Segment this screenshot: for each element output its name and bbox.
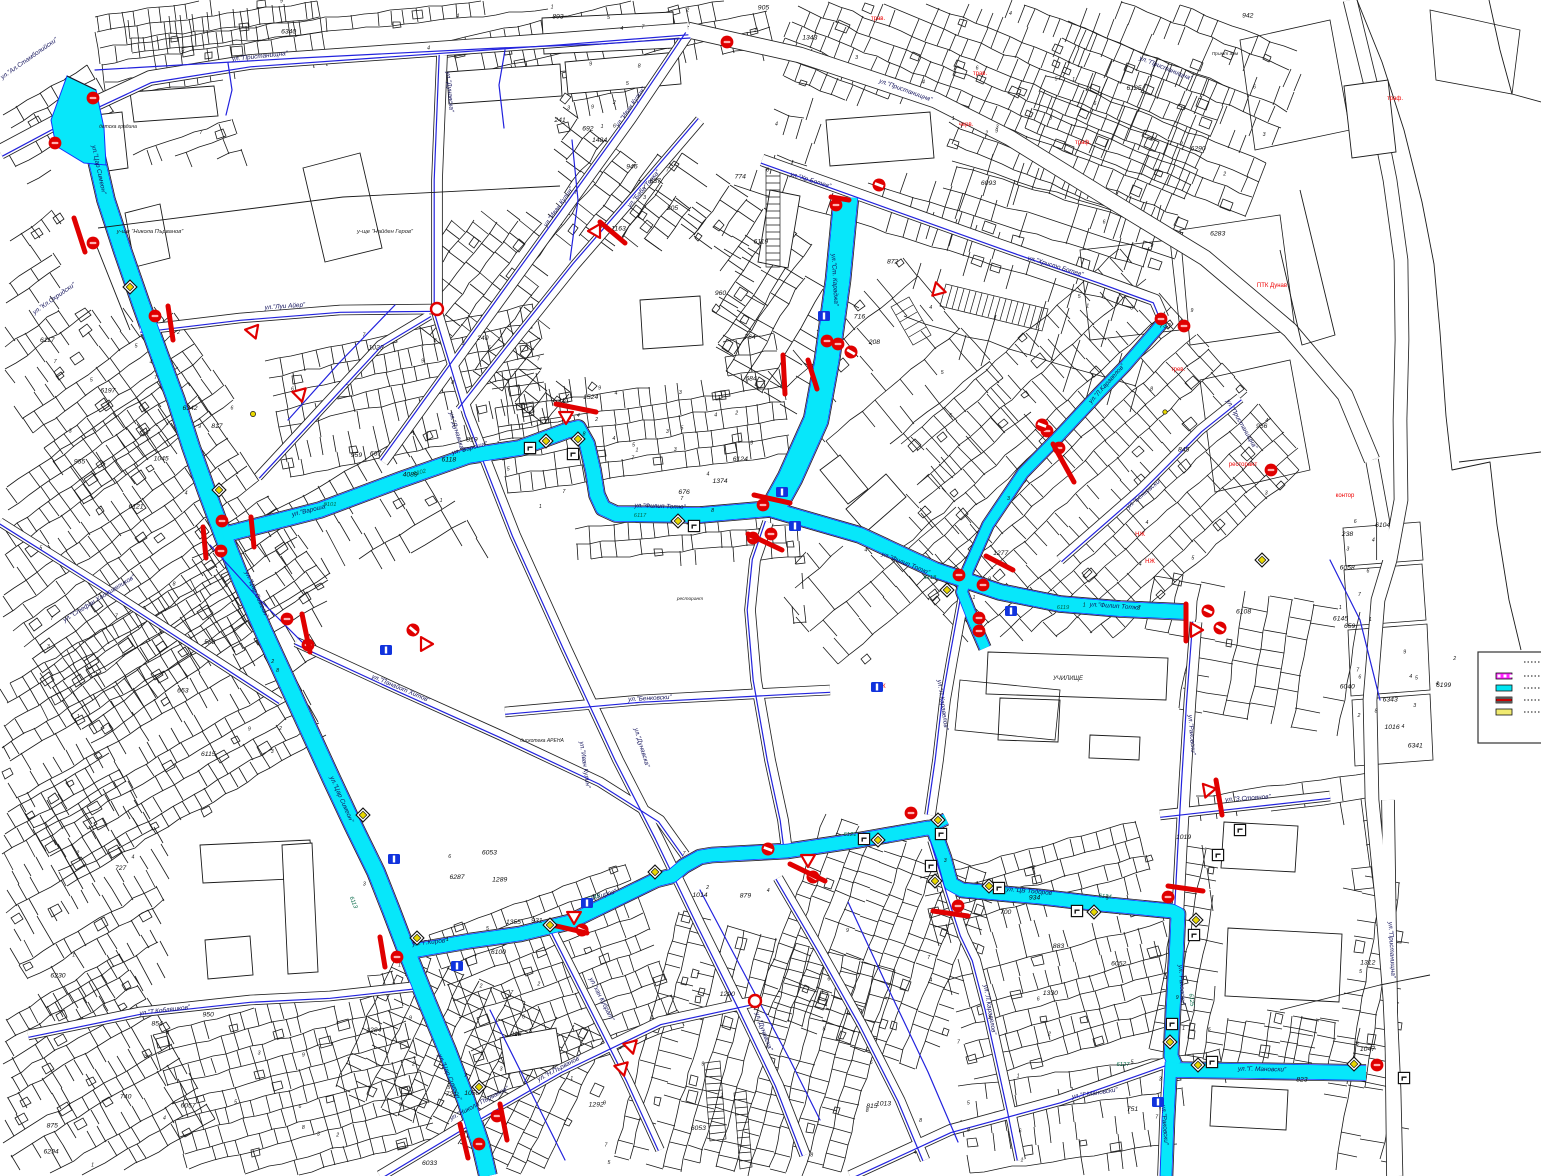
svg-text:1047: 1047 xyxy=(1360,1046,1375,1053)
svg-text:727: 727 xyxy=(115,865,127,872)
svg-text:3: 3 xyxy=(1413,703,1416,709)
svg-text:НЖ: НЖ xyxy=(1145,559,1155,565)
svg-text:2: 2 xyxy=(1032,865,1036,871)
svg-text:1: 1 xyxy=(643,184,646,190)
svg-text:4: 4 xyxy=(1372,537,1375,543)
svg-text:5: 5 xyxy=(1106,895,1109,901)
svg-text:854: 854 xyxy=(151,1020,163,1027)
svg-text:2: 2 xyxy=(1222,171,1226,177)
svg-text:5: 5 xyxy=(1131,1059,1134,1065)
svg-text:1355: 1355 xyxy=(506,919,521,926)
svg-text:6119: 6119 xyxy=(754,238,769,245)
svg-text:6118: 6118 xyxy=(442,457,457,464)
svg-text:3: 3 xyxy=(500,1067,503,1073)
svg-text:2: 2 xyxy=(536,982,540,988)
svg-text:2: 2 xyxy=(594,417,598,423)
svg-text:5: 5 xyxy=(507,466,510,472)
svg-text:5: 5 xyxy=(608,1160,611,1166)
svg-text:6: 6 xyxy=(1354,519,1357,525)
svg-text:2: 2 xyxy=(984,131,988,137)
svg-text:6: 6 xyxy=(613,124,616,130)
svg-text:1: 1 xyxy=(821,989,824,995)
svg-text:1: 1 xyxy=(440,498,443,504)
svg-text:6033: 6033 xyxy=(422,1160,437,1167)
svg-text:9: 9 xyxy=(198,424,201,430)
svg-text:5: 5 xyxy=(90,377,93,383)
svg-text:2: 2 xyxy=(335,1133,339,1139)
svg-text:875: 875 xyxy=(47,1122,59,1129)
svg-text:6: 6 xyxy=(1094,101,1097,107)
svg-text:4: 4 xyxy=(707,471,710,477)
svg-text:3: 3 xyxy=(317,1131,320,1137)
svg-text:657: 657 xyxy=(370,451,382,458)
svg-text:9: 9 xyxy=(248,726,251,732)
svg-text:1343: 1343 xyxy=(802,34,817,41)
svg-text:ресторант: ресторант xyxy=(676,597,703,602)
svg-text:8: 8 xyxy=(302,1125,305,1131)
svg-text:6: 6 xyxy=(1253,84,1256,90)
svg-text:3: 3 xyxy=(166,1030,169,1036)
svg-text:1013: 1013 xyxy=(876,1100,891,1107)
svg-text:6: 6 xyxy=(976,66,979,72)
svg-text:2: 2 xyxy=(1356,713,1360,719)
svg-text:трев.: трев. xyxy=(1171,367,1186,373)
svg-text:3: 3 xyxy=(674,447,677,453)
svg-text:3: 3 xyxy=(996,124,999,130)
svg-text:6115: 6115 xyxy=(201,751,216,758)
svg-text:9: 9 xyxy=(701,1061,704,1067)
svg-text:1016: 1016 xyxy=(1384,724,1399,731)
svg-text:3: 3 xyxy=(1356,1041,1359,1047)
svg-text:6117: 6117 xyxy=(40,337,55,344)
svg-text:5: 5 xyxy=(135,343,138,349)
svg-text:1: 1 xyxy=(721,1093,724,1099)
svg-text:4: 4 xyxy=(185,490,188,496)
svg-text:3: 3 xyxy=(47,644,50,650)
svg-text:8: 8 xyxy=(122,653,125,659)
svg-text:1045: 1045 xyxy=(154,456,169,463)
svg-text:1: 1 xyxy=(601,124,604,130)
svg-text:5: 5 xyxy=(607,15,610,21)
svg-text:6: 6 xyxy=(1019,1129,1022,1135)
svg-text:4089: 4089 xyxy=(403,472,418,479)
svg-text:8: 8 xyxy=(173,582,176,588)
svg-text:893: 893 xyxy=(552,13,564,20)
svg-text:1: 1 xyxy=(1182,979,1185,985)
svg-text:6125: 6125 xyxy=(1187,993,1194,1007)
svg-text:6343: 6343 xyxy=(1383,697,1398,704)
svg-text:3: 3 xyxy=(1265,491,1268,497)
svg-text:9: 9 xyxy=(603,1101,606,1107)
svg-text:1: 1 xyxy=(398,963,401,969)
svg-text:8: 8 xyxy=(638,63,641,69)
svg-text:8: 8 xyxy=(711,508,714,514)
svg-text:6118: 6118 xyxy=(924,575,937,581)
svg-text:9: 9 xyxy=(421,359,424,365)
svg-text:6341: 6341 xyxy=(1408,742,1423,749)
svg-text:дискотека АРЕНА: дискотека АРЕНА xyxy=(520,738,564,744)
svg-text:6: 6 xyxy=(1358,675,1361,681)
svg-text:4: 4 xyxy=(163,1115,166,1121)
svg-text:УЧИЛИЩЕ: УЧИЛИЩЕ xyxy=(1052,676,1084,682)
svg-text:1: 1 xyxy=(952,116,955,122)
svg-text:942: 942 xyxy=(1242,13,1254,20)
svg-text:5: 5 xyxy=(967,1100,970,1106)
svg-text:1: 1 xyxy=(1072,77,1075,83)
svg-text:1: 1 xyxy=(539,504,542,510)
svg-text:6053: 6053 xyxy=(482,850,497,857)
svg-text:1: 1 xyxy=(91,1163,94,1169)
svg-text:1289: 1289 xyxy=(492,876,507,883)
svg-text:5: 5 xyxy=(1078,294,1081,300)
svg-text:8: 8 xyxy=(967,1128,970,1134)
svg-text:2: 2 xyxy=(278,726,282,732)
svg-text:6058: 6058 xyxy=(1340,564,1355,571)
svg-text:трав.: трав. xyxy=(973,71,988,77)
svg-text:845: 845 xyxy=(1178,446,1190,453)
svg-text:1277: 1277 xyxy=(993,550,1008,557)
svg-text:черв.: черв. xyxy=(959,122,974,128)
svg-text:4: 4 xyxy=(913,1150,916,1156)
svg-text:918: 918 xyxy=(510,1031,522,1038)
svg-text:6294: 6294 xyxy=(44,1148,59,1155)
svg-text:6127: 6127 xyxy=(1117,1062,1131,1068)
svg-text:3: 3 xyxy=(988,1015,991,1021)
svg-text:9: 9 xyxy=(750,440,753,446)
svg-text:955: 955 xyxy=(74,459,86,466)
svg-text:1: 1 xyxy=(1017,1073,1020,1079)
svg-text:3: 3 xyxy=(271,749,274,755)
svg-text:5: 5 xyxy=(1191,555,1194,561)
svg-text:3: 3 xyxy=(1007,496,1010,502)
svg-text:6121: 6121 xyxy=(128,503,143,510)
svg-text:1: 1 xyxy=(1369,617,1372,623)
svg-text:8: 8 xyxy=(1375,708,1378,714)
svg-text:контор: контор xyxy=(1336,493,1355,499)
svg-text:934: 934 xyxy=(1029,894,1041,901)
svg-text:4: 4 xyxy=(922,80,925,86)
svg-text:6: 6 xyxy=(448,854,451,860)
svg-text:9: 9 xyxy=(409,1015,412,1021)
svg-text:1312: 1312 xyxy=(1360,960,1375,967)
svg-text:960: 960 xyxy=(715,290,727,297)
svg-text:3: 3 xyxy=(69,428,72,434)
svg-text:3: 3 xyxy=(462,341,465,347)
svg-text:5: 5 xyxy=(680,425,683,431)
svg-text:240: 240 xyxy=(476,335,489,342)
svg-text:959: 959 xyxy=(351,452,363,459)
svg-text:4: 4 xyxy=(1436,681,1439,687)
svg-text:1: 1 xyxy=(1086,304,1089,310)
svg-text:6117: 6117 xyxy=(634,513,647,519)
svg-text:4: 4 xyxy=(714,412,717,418)
svg-text:8: 8 xyxy=(1150,387,1153,393)
svg-text:4: 4 xyxy=(1009,11,1012,17)
svg-text:8: 8 xyxy=(919,1118,922,1124)
svg-text:3: 3 xyxy=(1137,606,1140,612)
svg-text:2: 2 xyxy=(1452,656,1456,662)
svg-text:4: 4 xyxy=(1402,724,1405,730)
svg-text:659: 659 xyxy=(1344,623,1356,630)
svg-text:3: 3 xyxy=(643,195,646,201)
svg-text:1: 1 xyxy=(446,937,449,943)
svg-text:6040: 6040 xyxy=(1340,683,1355,690)
svg-text:1284: 1284 xyxy=(366,1027,381,1034)
svg-text:6: 6 xyxy=(1037,996,1040,1002)
svg-text:4: 4 xyxy=(614,391,617,397)
svg-text:837: 837 xyxy=(649,178,661,185)
svg-text:5: 5 xyxy=(1415,675,1418,681)
svg-text:8: 8 xyxy=(451,380,454,386)
svg-text:3: 3 xyxy=(666,429,669,435)
svg-text:9: 9 xyxy=(280,0,283,5)
svg-text:6100: 6100 xyxy=(491,949,506,956)
svg-text:6230: 6230 xyxy=(50,972,65,979)
svg-text:1014: 1014 xyxy=(692,892,707,899)
svg-text:6: 6 xyxy=(488,345,491,351)
svg-text:6052: 6052 xyxy=(1111,961,1126,968)
svg-text:5: 5 xyxy=(632,443,635,449)
svg-text:2: 2 xyxy=(734,411,738,417)
svg-text:ул.”Г. Мановски”: ул.”Г. Мановски” xyxy=(1237,1066,1287,1074)
svg-text:8: 8 xyxy=(810,1152,813,1158)
svg-text:208: 208 xyxy=(868,339,881,346)
svg-text:9: 9 xyxy=(1191,308,1194,314)
svg-text:6340: 6340 xyxy=(281,28,296,35)
svg-text:8: 8 xyxy=(866,1108,869,1114)
svg-text:4: 4 xyxy=(767,888,770,894)
svg-text:764: 764 xyxy=(744,334,756,341)
svg-text:4: 4 xyxy=(775,121,778,127)
svg-text:205: 205 xyxy=(666,205,679,212)
svg-text:6057: 6057 xyxy=(181,1102,196,1109)
svg-text:6283: 6283 xyxy=(1210,231,1225,238)
svg-text:9: 9 xyxy=(302,1053,305,1059)
svg-text:1023: 1023 xyxy=(369,344,384,351)
svg-text:6: 6 xyxy=(827,977,830,983)
svg-text:6121: 6121 xyxy=(844,832,857,838)
svg-text:3: 3 xyxy=(679,390,682,396)
svg-text:6: 6 xyxy=(1367,568,1370,574)
svg-text:1: 1 xyxy=(1083,602,1086,608)
svg-text:1330: 1330 xyxy=(1043,990,1058,997)
svg-text:740: 740 xyxy=(120,1093,132,1100)
svg-text:3: 3 xyxy=(1159,1076,1162,1082)
svg-text:238: 238 xyxy=(1341,531,1354,538)
svg-text:у-ще “Найден Геров”: у-ще “Найден Геров” xyxy=(356,228,414,235)
svg-text:879: 879 xyxy=(740,893,752,900)
svg-text:872: 872 xyxy=(887,259,899,266)
svg-text:4: 4 xyxy=(1139,561,1142,567)
svg-text:774: 774 xyxy=(735,174,747,181)
svg-text:716: 716 xyxy=(854,314,866,321)
svg-text:4: 4 xyxy=(456,13,459,19)
svg-text:950: 950 xyxy=(203,1012,215,1019)
svg-text:8: 8 xyxy=(399,1102,402,1108)
svg-text:2: 2 xyxy=(685,7,689,13)
svg-text:9: 9 xyxy=(144,1053,147,1059)
svg-text:6: 6 xyxy=(766,168,769,174)
svg-text:1: 1 xyxy=(1339,605,1342,611)
svg-text:3: 3 xyxy=(1346,547,1349,553)
svg-text:905: 905 xyxy=(758,4,770,11)
svg-text:931: 931 xyxy=(531,918,543,925)
svg-text:ПТК Дунав: ПТК Дунав xyxy=(1257,283,1287,289)
svg-text:9: 9 xyxy=(1403,649,1406,655)
svg-text:6: 6 xyxy=(231,406,234,412)
svg-text:5: 5 xyxy=(39,546,42,552)
svg-text:3: 3 xyxy=(1263,132,1266,138)
svg-text:823: 823 xyxy=(1296,1077,1308,1084)
svg-text:692: 692 xyxy=(582,126,594,133)
svg-text:6145: 6145 xyxy=(1333,616,1348,623)
svg-text:700: 700 xyxy=(1000,909,1012,916)
svg-text:8: 8 xyxy=(434,338,437,344)
svg-text:НЖ: НЖ xyxy=(1135,532,1145,538)
svg-text:4: 4 xyxy=(132,855,135,861)
svg-text:6119: 6119 xyxy=(1057,605,1070,611)
svg-text:3: 3 xyxy=(1049,115,1052,121)
svg-text:9: 9 xyxy=(591,105,594,111)
svg-text:2: 2 xyxy=(1179,141,1183,147)
svg-text:1: 1 xyxy=(1182,1026,1185,1032)
svg-text:2: 2 xyxy=(705,885,709,891)
svg-text:1374: 1374 xyxy=(712,478,727,485)
svg-text:2: 2 xyxy=(612,100,616,106)
svg-text:детска градина: детска градина xyxy=(99,124,137,130)
svg-text:1290: 1290 xyxy=(720,991,735,998)
svg-text:5: 5 xyxy=(234,1100,237,1106)
svg-text:2: 2 xyxy=(270,659,274,665)
svg-text:1: 1 xyxy=(551,5,554,11)
svg-text:5: 5 xyxy=(1055,77,1058,83)
svg-text:Приют арм: Приют арм xyxy=(1212,51,1239,57)
svg-text:5: 5 xyxy=(486,926,489,932)
svg-text:3: 3 xyxy=(944,858,947,864)
svg-text:817: 817 xyxy=(211,423,223,430)
svg-text:4: 4 xyxy=(929,978,932,984)
svg-text:4: 4 xyxy=(1146,520,1149,526)
svg-text:1: 1 xyxy=(636,448,639,454)
svg-text:4: 4 xyxy=(1265,418,1268,424)
svg-text:4: 4 xyxy=(577,413,580,419)
svg-text:3: 3 xyxy=(258,1050,261,1056)
svg-text:653: 653 xyxy=(177,687,189,694)
svg-text:4: 4 xyxy=(1409,674,1412,680)
svg-text:1: 1 xyxy=(1020,1158,1023,1164)
svg-text:4: 4 xyxy=(149,360,152,366)
svg-text:5: 5 xyxy=(949,413,952,419)
svg-text:9: 9 xyxy=(598,385,601,391)
svg-text:5: 5 xyxy=(941,370,944,376)
svg-text:1524: 1524 xyxy=(583,394,598,401)
svg-text:8: 8 xyxy=(823,1026,826,1032)
svg-text:6101: 6101 xyxy=(324,502,337,508)
svg-text:6: 6 xyxy=(299,1104,302,1110)
svg-text:751: 751 xyxy=(1127,1106,1139,1113)
svg-text:у-ще “Никола Първанов”: у-ще “Никола Първанов” xyxy=(116,229,184,235)
svg-text:2: 2 xyxy=(411,1062,415,1068)
svg-text:6093: 6093 xyxy=(981,180,996,187)
svg-text:6108: 6108 xyxy=(1236,608,1251,615)
svg-text:3: 3 xyxy=(567,105,570,111)
svg-text:6053: 6053 xyxy=(691,1125,706,1132)
svg-text:5: 5 xyxy=(447,1085,450,1091)
svg-text:1: 1 xyxy=(754,28,757,34)
svg-text:5: 5 xyxy=(1359,969,1362,975)
svg-text:6: 6 xyxy=(1103,219,1106,225)
svg-text:2: 2 xyxy=(176,330,180,336)
svg-text:6: 6 xyxy=(522,1015,525,1021)
svg-text:6125: 6125 xyxy=(1126,85,1141,92)
svg-text:1: 1 xyxy=(72,953,75,959)
svg-text:1: 1 xyxy=(77,714,80,720)
svg-text:588: 588 xyxy=(204,639,216,646)
svg-text:1: 1 xyxy=(570,1076,573,1082)
svg-text:3: 3 xyxy=(855,55,858,61)
svg-text:4: 4 xyxy=(620,26,623,32)
svg-text:8: 8 xyxy=(276,668,279,674)
svg-text:721: 721 xyxy=(446,1091,458,1098)
svg-text:траф.: траф. xyxy=(1075,140,1091,146)
svg-text:4: 4 xyxy=(612,436,615,442)
svg-text:6: 6 xyxy=(745,379,748,385)
svg-text:2: 2 xyxy=(1047,1032,1051,1038)
svg-text:трав.: трав. xyxy=(871,16,886,22)
svg-text:2: 2 xyxy=(479,1050,483,1056)
svg-text:1292: 1292 xyxy=(589,1101,604,1108)
svg-text:6290: 6290 xyxy=(1191,145,1206,152)
svg-text:9: 9 xyxy=(846,928,849,934)
svg-text:6342: 6342 xyxy=(182,405,197,412)
svg-text:5: 5 xyxy=(626,81,629,87)
svg-text:6: 6 xyxy=(870,1060,873,1066)
svg-text:2: 2 xyxy=(1150,136,1154,142)
svg-text:1: 1 xyxy=(973,595,976,601)
svg-text:819: 819 xyxy=(466,436,478,443)
svg-text:9: 9 xyxy=(1176,995,1179,1001)
svg-text:6: 6 xyxy=(1208,1027,1211,1033)
svg-text:946: 946 xyxy=(626,164,638,171)
svg-text:ресторант: ресторант xyxy=(1229,462,1258,468)
svg-text:1484: 1484 xyxy=(592,137,607,144)
svg-text:241: 241 xyxy=(553,117,566,124)
svg-text:883: 883 xyxy=(1053,943,1065,950)
svg-text:траф.: траф. xyxy=(1387,96,1403,102)
svg-text:3: 3 xyxy=(181,49,184,55)
svg-text:2: 2 xyxy=(75,850,79,856)
svg-text:3: 3 xyxy=(1130,305,1133,311)
svg-text:2: 2 xyxy=(479,984,483,990)
svg-text:1019: 1019 xyxy=(1176,834,1191,841)
svg-text:6197: 6197 xyxy=(100,388,115,395)
svg-text:6124: 6124 xyxy=(733,456,748,463)
svg-text:9: 9 xyxy=(589,62,592,68)
svg-text:4: 4 xyxy=(929,305,932,311)
svg-text:3: 3 xyxy=(363,882,366,888)
svg-text:4: 4 xyxy=(864,548,867,554)
svg-text:6287: 6287 xyxy=(449,874,464,881)
svg-text:6104: 6104 xyxy=(1375,522,1390,529)
svg-text:4: 4 xyxy=(427,46,430,52)
